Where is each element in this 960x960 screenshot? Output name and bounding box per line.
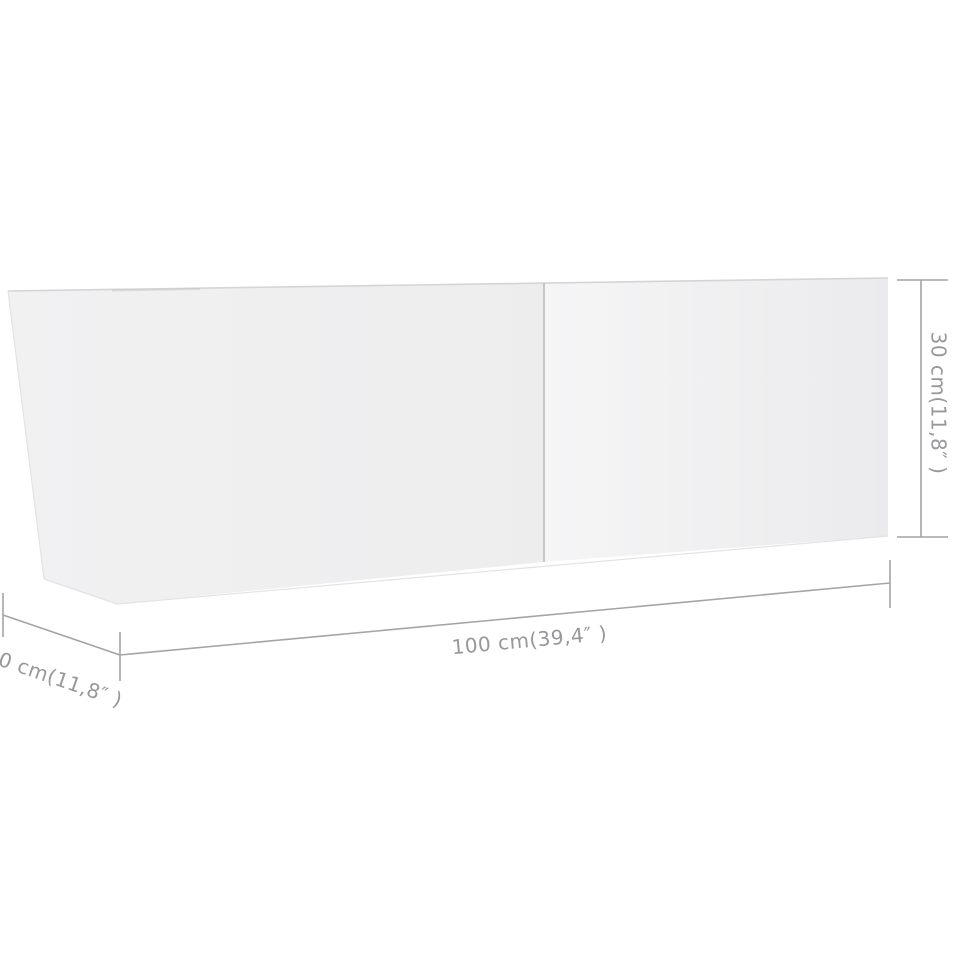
height-dimension: 30 cm(11,8″ ) — [897, 280, 951, 537]
depth-dimension-line — [3, 615, 120, 655]
dimension-diagram-svg: 30 cm(11,8″ ) 100 cm(39,4″ ) 0 cm(11,8″ … — [0, 0, 960, 960]
depth-dimension-label: 0 cm(11,8″ ) — [0, 647, 126, 712]
product-dimension-image: 30 cm(11,8″ ) 100 cm(39,4″ ) 0 cm(11,8″ … — [0, 0, 960, 960]
cabinet-right-panel — [544, 278, 888, 562]
cabinet-left-panel — [8, 283, 544, 604]
height-dimension-label: 30 cm(11,8″ ) — [927, 332, 951, 475]
width-dimension-label: 100 cm(39,4″ ) — [451, 621, 609, 659]
depth-dimension: 0 cm(11,8″ ) — [0, 593, 126, 712]
